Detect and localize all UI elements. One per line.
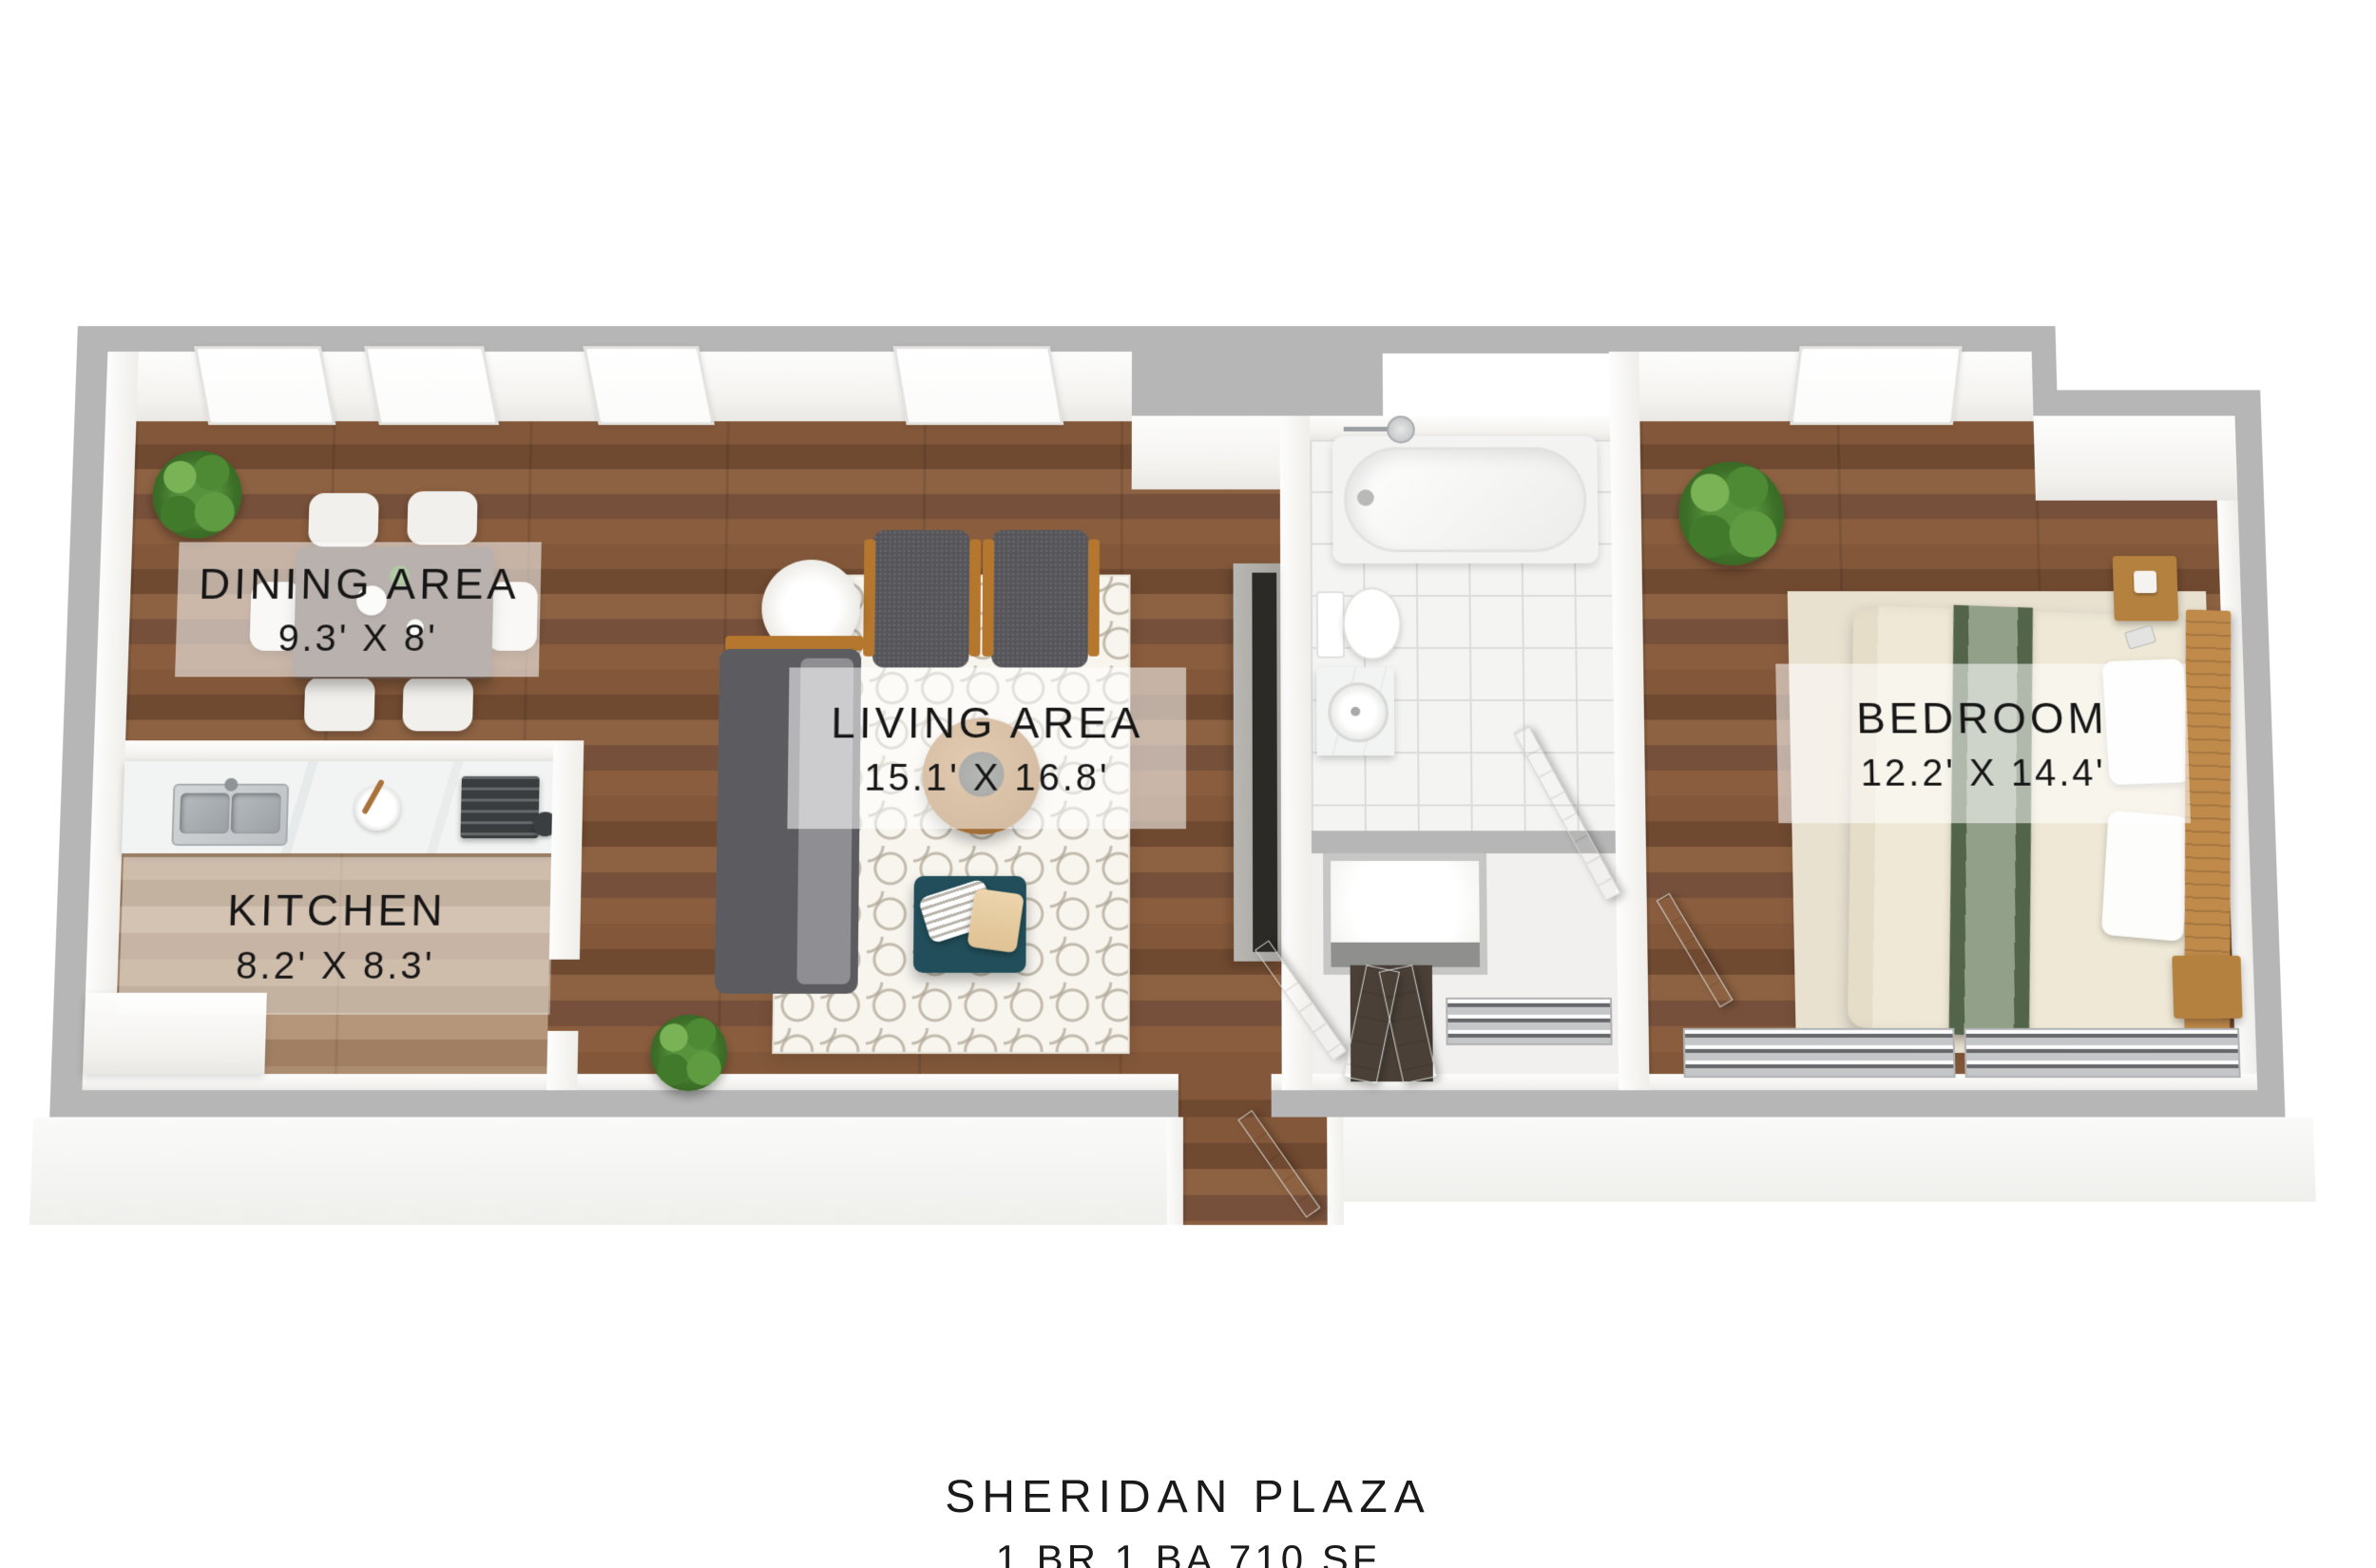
caption-block: SHERIDAN PLAZA 1 BR 1 BA 710 SF (0, 1471, 2376, 1568)
tub-drain-icon (1357, 489, 1374, 506)
nightstand-plant-cup-icon (2134, 571, 2157, 593)
shower-arm-icon (1344, 427, 1392, 431)
vestibule-jamb (1167, 1117, 1183, 1225)
vestibule-jamb (1327, 1117, 1344, 1225)
entry-threshold (1178, 1074, 1272, 1117)
window-bedroom (1790, 346, 1963, 425)
window-dining-2 (364, 346, 499, 425)
toilet-tank-icon (1316, 591, 1345, 659)
entry-wire-closet (1446, 998, 1612, 1045)
armchair (991, 530, 1088, 668)
bedroom-wire-closet (1683, 1028, 1956, 1078)
kitchen-name: KITCHEN (227, 884, 448, 935)
bedroom-dims: 12.2' X 14.4' (1860, 753, 2106, 794)
dining-chair (402, 677, 473, 731)
kitchen-label: KITCHEN 8.2' X 8.3' (118, 857, 553, 1015)
kitchen-right-wall-lower (546, 1031, 578, 1090)
living-area-label: LIVING AREA 15.1' X 16.8' (787, 667, 1186, 829)
armchair (872, 530, 969, 668)
bed-pillow (2101, 811, 2191, 942)
kitchen-right-wall-upper (549, 740, 584, 959)
toilet-bowl-icon (1343, 587, 1402, 660)
dining-area-name: DINING AREA (198, 559, 520, 609)
dining-area-label: DINING AREA 9.3' X 8' (175, 542, 542, 677)
property-title: SHERIDAN PLAZA (0, 1471, 2376, 1523)
shower-head-icon (1387, 416, 1415, 444)
bedroom-plant-icon (1678, 462, 1786, 565)
wall-face-bedroom-corner (2033, 416, 2237, 501)
dining-chair (304, 677, 375, 731)
floorplan-scene: DINING AREA 9.3' X 8' KITCHEN 8.2' X 8.3… (0, 28, 2376, 1568)
armchair-arm-icon (982, 540, 994, 657)
window-dining-1 (194, 346, 336, 425)
bathtub (1332, 436, 1599, 564)
bathtub-basin (1344, 447, 1587, 552)
armchair-arm-icon (863, 540, 875, 657)
armchair-arm-icon (1088, 540, 1100, 657)
unit-summary: 1 BR 1 BA 710 SF (0, 1537, 2376, 1568)
sink-drain-icon (1351, 707, 1360, 717)
wall-face-bottom-a (82, 1074, 1178, 1090)
wall-bottom-right (1272, 1090, 2286, 1117)
window-living (892, 346, 1063, 425)
tv-icon (1252, 573, 1277, 952)
living-area-dims: 15.1' X 16.8' (864, 756, 1110, 798)
stove-cooktop (460, 776, 539, 838)
wall-bath-notch (1132, 326, 1383, 415)
wall-bottom-left (49, 1090, 1178, 1117)
bedroom-label: BEDROOM 12.2' X 14.4' (1775, 664, 2191, 824)
sink-faucet-icon (224, 778, 238, 792)
bedroom-name: BEDROOM (1856, 693, 2109, 743)
linen-closet-niche (1323, 853, 1487, 975)
floorplan-canvas: DINING AREA 9.3' X 8' KITCHEN 8.2' X 8.3… (0, 0, 2376, 1568)
wall-step-horizontal (2033, 391, 2261, 416)
bedroom-wire-closet (1964, 1028, 2240, 1078)
wall-skirt-left (29, 1117, 1167, 1225)
dining-chair (308, 493, 379, 546)
living-area-name: LIVING AREA (831, 697, 1143, 747)
wall-skirt-right (1343, 1117, 2315, 1201)
kitchen-backsplash-wall (125, 740, 584, 761)
kitchen-double-sink (171, 784, 289, 846)
armchair-arm-icon (968, 540, 981, 657)
dining-chair (407, 491, 478, 545)
wall-face-top-jog (1132, 416, 1280, 489)
window-dining-3 (583, 346, 715, 425)
kitchen-dims: 8.2' X 8.3' (236, 945, 435, 987)
sink-basin-right (231, 794, 281, 834)
sink-basin-left (180, 794, 230, 834)
ottoman-blanket-icon (967, 888, 1025, 952)
dining-area-dims: 9.3' X 8' (278, 619, 438, 660)
nightstand (2172, 956, 2242, 1019)
